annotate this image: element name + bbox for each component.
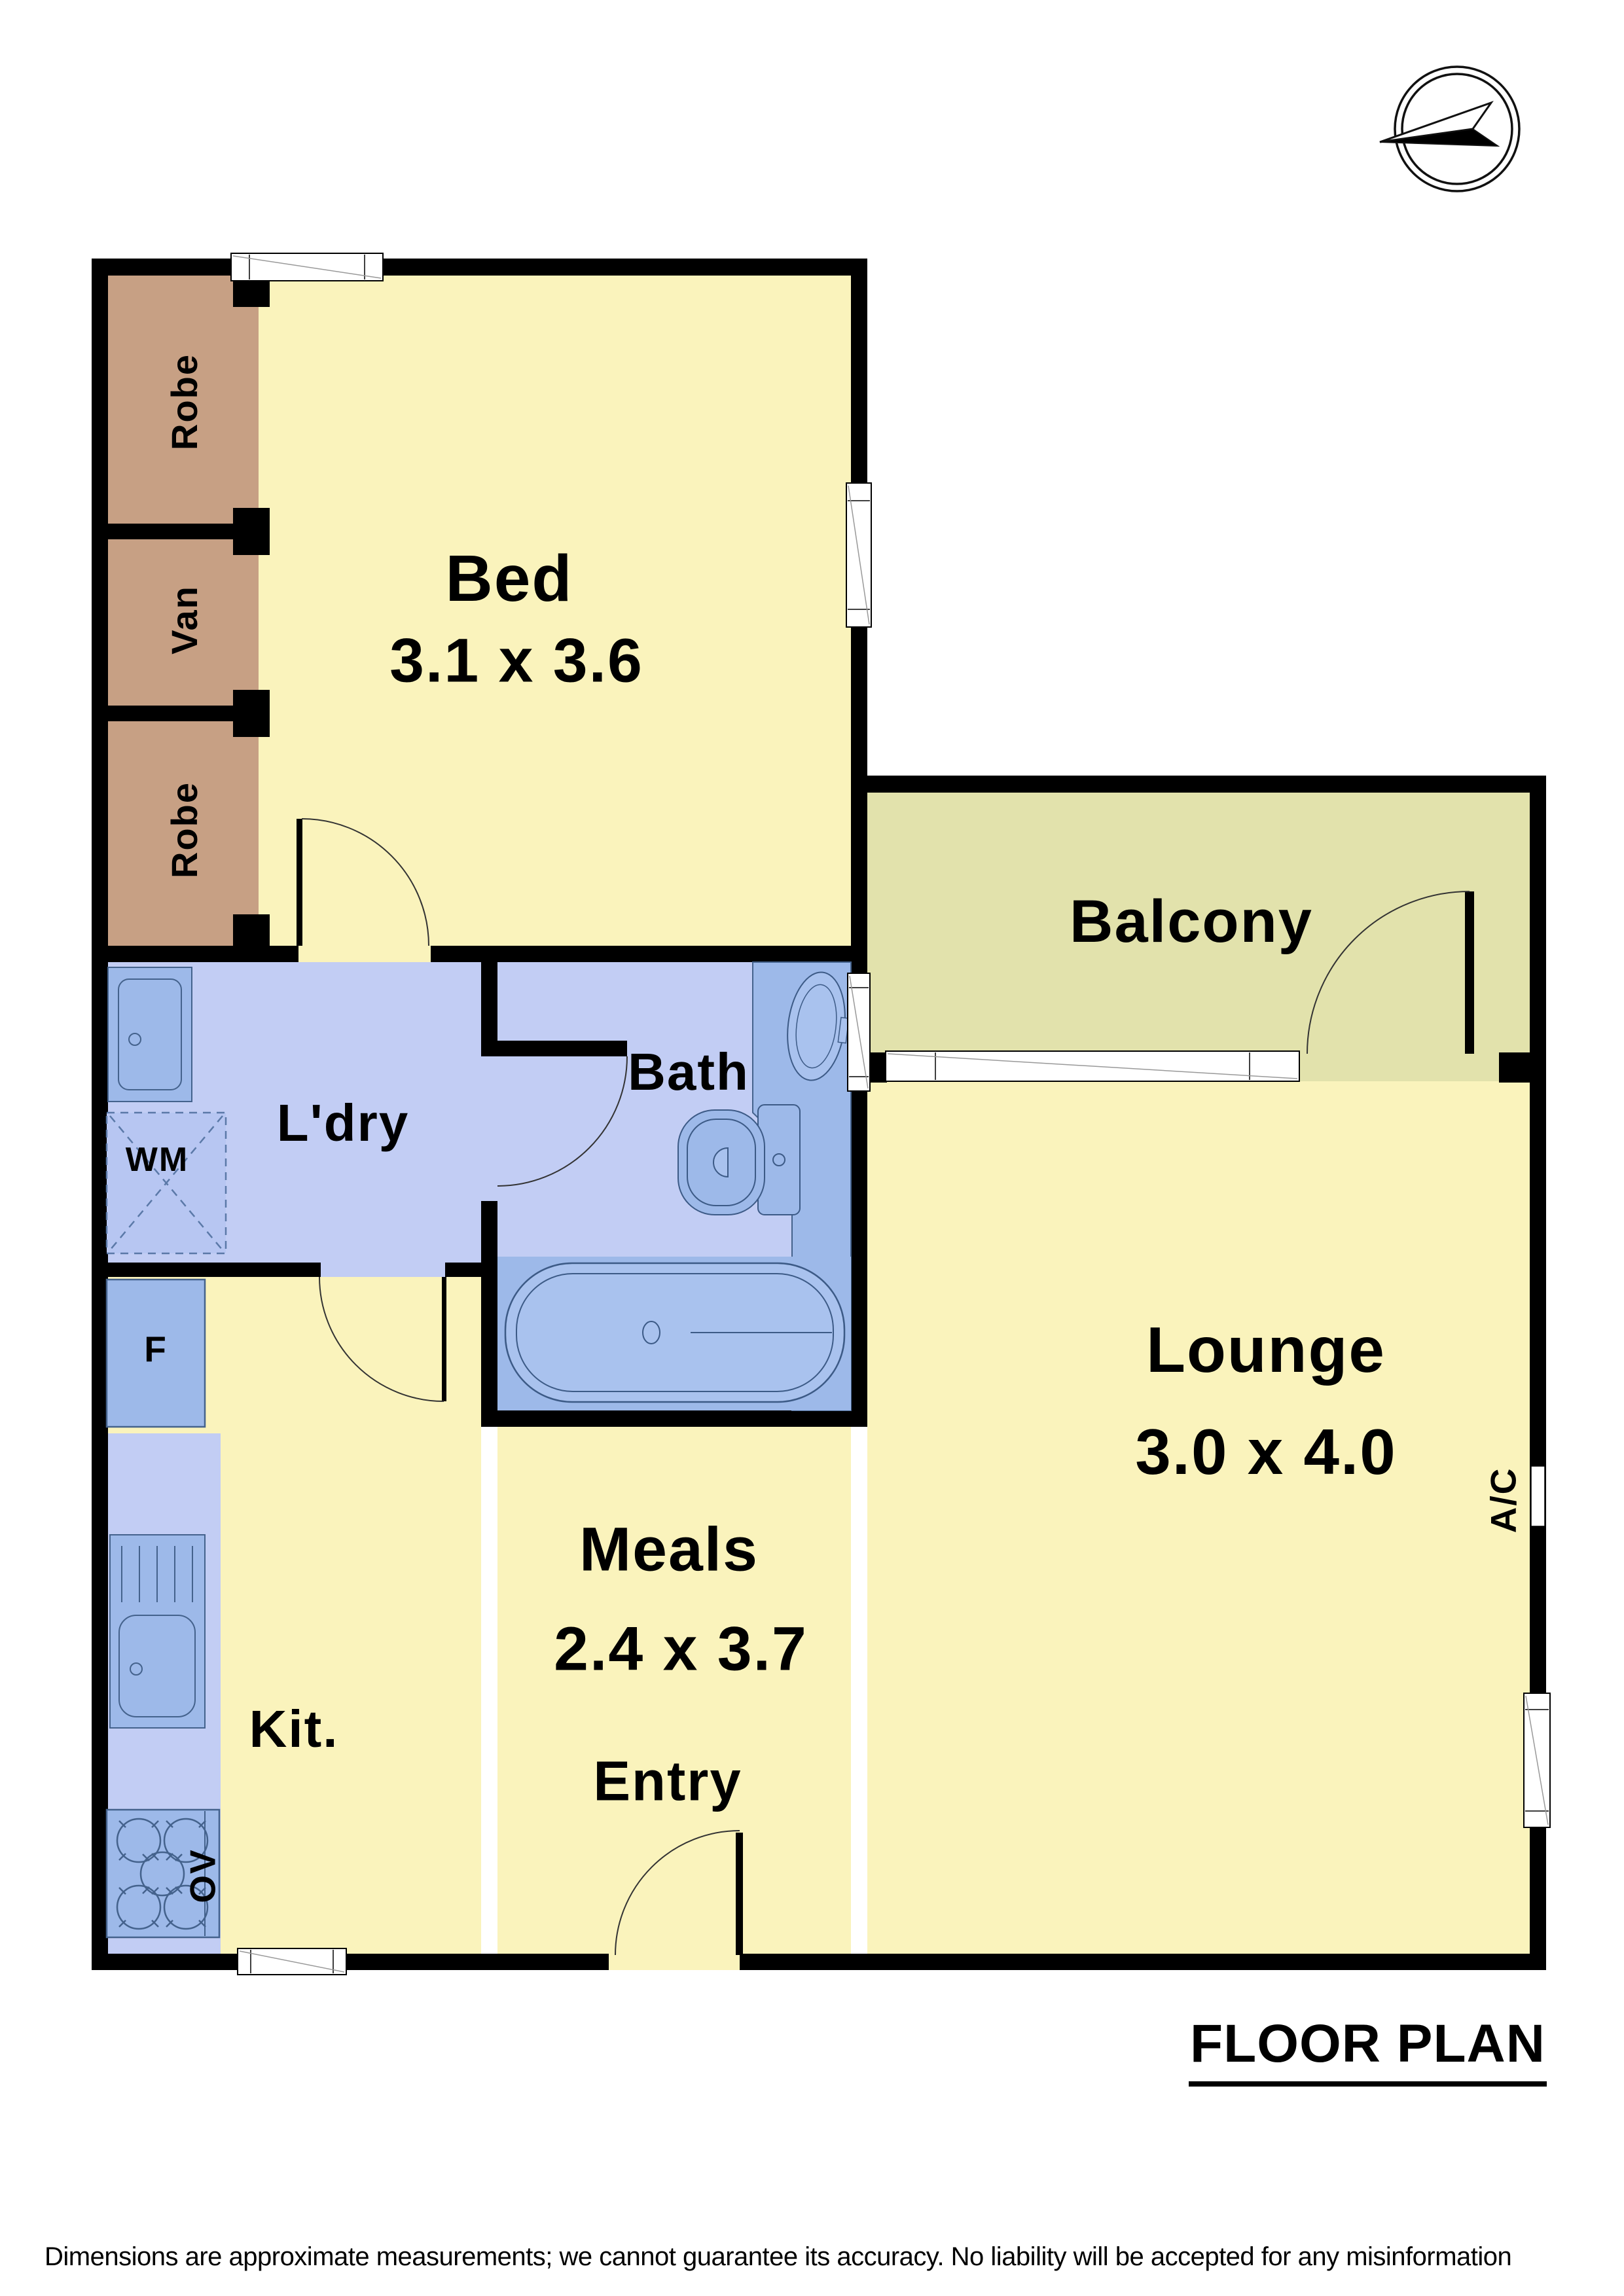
page-title: FLOOR PLAN (1189, 2013, 1547, 2087)
entry-threshold (609, 1954, 740, 1970)
washing-machine-label: WM (126, 1143, 189, 1177)
lounge-dims: 3.0 x 4.0 (1135, 1420, 1396, 1484)
wall-bottom (740, 1954, 1546, 1970)
wall-bath-door-stub (481, 1041, 627, 1056)
bed-room-label: Bed (446, 546, 573, 611)
bed-window-right (846, 483, 871, 627)
robe-wall-stub (233, 508, 270, 555)
wall-balcony-corner-block (1499, 1052, 1530, 1083)
wall-bath-bottom (481, 1410, 867, 1427)
wall-bath-left (481, 1201, 497, 1427)
wall-bed-bottom (431, 946, 867, 962)
bed-door-threshold (298, 946, 431, 962)
air-conditioner-label: A/C (1486, 1467, 1522, 1534)
wall-top (92, 259, 867, 276)
wall-left (92, 259, 108, 1970)
vanity-closet-label: Van (166, 585, 203, 655)
kitchen-sink (110, 1535, 205, 1728)
fridge-label: F (144, 1332, 168, 1368)
wall-balcony-top (851, 776, 1546, 793)
bathtub (497, 1257, 851, 1410)
entry-label: Entry (593, 1754, 742, 1810)
air-conditioner-unit (1531, 1466, 1545, 1526)
wall-laundry-bottom (92, 1263, 321, 1277)
bed-window-top (231, 253, 383, 281)
bath-window (848, 973, 870, 1091)
lounge-label: Lounge (1146, 1318, 1386, 1382)
meals-dims: 2.4 x 3.7 (554, 1619, 808, 1681)
lounge-window (1524, 1693, 1550, 1827)
meals-floor (497, 1427, 851, 1954)
north-arrow-icon (1380, 67, 1519, 191)
bed-room-dims: 3.1 x 3.6 (389, 630, 643, 692)
robe-bottom-label: Robe (166, 781, 203, 878)
bath-label: Bath (628, 1046, 749, 1098)
robe-top-label: Robe (166, 353, 203, 450)
washing-machine-space (107, 1113, 226, 1253)
wall-bed-bottom (92, 946, 298, 962)
wall-bath-right (851, 1090, 867, 1427)
wall-bottom (345, 1954, 609, 1970)
laundry-label: L'dry (277, 1097, 409, 1149)
wall-bath-right (851, 793, 867, 975)
disclaimer-text: Dimensions are approximate measurements;… (45, 2242, 1511, 2272)
floor-plan-drawing (0, 0, 1624, 2296)
balcony-label: Balcony (1070, 891, 1313, 952)
lounge-floor (867, 1081, 1530, 1954)
laundry-door-threshold (321, 1263, 445, 1277)
toilet (678, 1105, 800, 1215)
bath-door-threshold (481, 1056, 497, 1201)
meals-label: Meals (579, 1519, 759, 1581)
balcony-door-threshold (1299, 1052, 1465, 1081)
balcony-window (886, 1051, 1299, 1081)
kitchen-label: Kit. (249, 1703, 339, 1755)
laundry-sink (108, 967, 192, 1102)
oven-label: OV (185, 1848, 221, 1903)
kitchen-window (238, 1948, 346, 1975)
wall-laundry-bottom (445, 1263, 497, 1277)
wall-bottom (92, 1954, 239, 1970)
robe-wall-stub (233, 690, 270, 737)
robe-wall-stub (233, 914, 270, 946)
